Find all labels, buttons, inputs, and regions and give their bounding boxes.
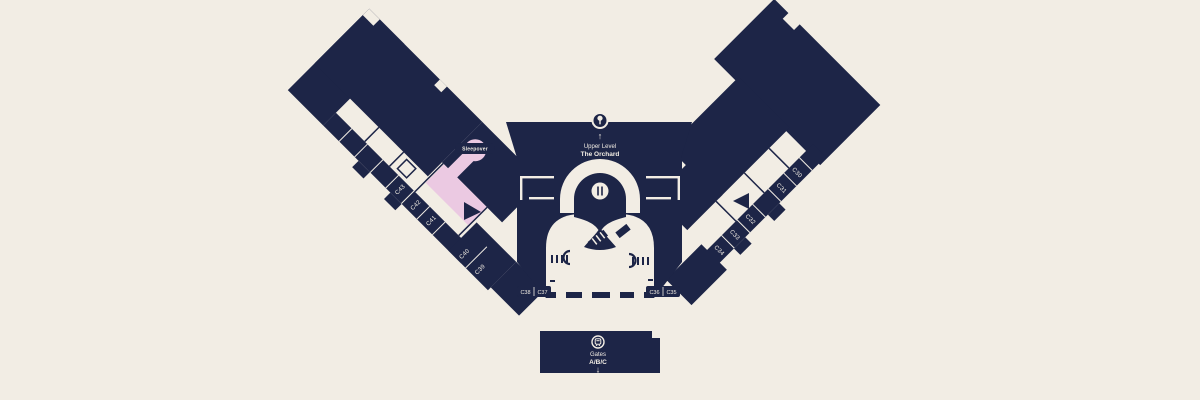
- plaza-step-line: [646, 176, 680, 178]
- corridor-wall: [744, 173, 765, 194]
- up-arrow: ↑: [598, 131, 603, 141]
- upper-level-line1: Upper Level: [584, 144, 616, 150]
- sleepover-pill[interactable]: Sleepover: [455, 143, 495, 154]
- corridor-wall: [769, 148, 790, 169]
- sleepover-label: Sleepover: [462, 147, 488, 153]
- gate-pair-bottom-right[interactable]: C36 C35: [646, 286, 680, 297]
- gate-label-c37[interactable]: C37: [537, 290, 547, 296]
- edge-notch: [610, 292, 620, 298]
- corridor-wall: [716, 201, 737, 222]
- plaza-step-line: [529, 197, 554, 199]
- edge-notch: [556, 292, 566, 298]
- upper-level-line2: The Orchard: [581, 151, 620, 158]
- transit-box[interactable]: Gates A/B/C ↓: [540, 331, 660, 375]
- gate-pair-bottom-left[interactable]: C38 C37: [517, 286, 551, 297]
- plaza-step-line: [646, 197, 671, 199]
- transit-line1: Gates: [590, 352, 606, 358]
- plaza-step-line: [520, 176, 554, 178]
- plaza-step-line: [520, 176, 522, 200]
- gate-label-c35[interactable]: C35: [666, 290, 676, 296]
- edge-notch: [582, 292, 592, 298]
- terminal-map-svg: C43 C42 C41 C40 C39 C34 C33 C32 C31 C30: [0, 0, 1200, 400]
- plaza-step-line: [678, 176, 680, 200]
- right-corridor-wedge: [733, 193, 749, 209]
- gate-label-c38[interactable]: C38: [520, 290, 530, 296]
- edge-notch: [634, 292, 644, 298]
- corridor-wall: [364, 127, 379, 142]
- rotunda-center-icon-bg: [592, 183, 609, 200]
- terminal-map: C43 C42 C41 C40 C39 C34 C33 C32 C31 C30: [0, 0, 1200, 400]
- gate-label-c36[interactable]: C36: [649, 290, 659, 296]
- corridor-room: [397, 159, 415, 177]
- down-arrow: ↓: [596, 365, 601, 375]
